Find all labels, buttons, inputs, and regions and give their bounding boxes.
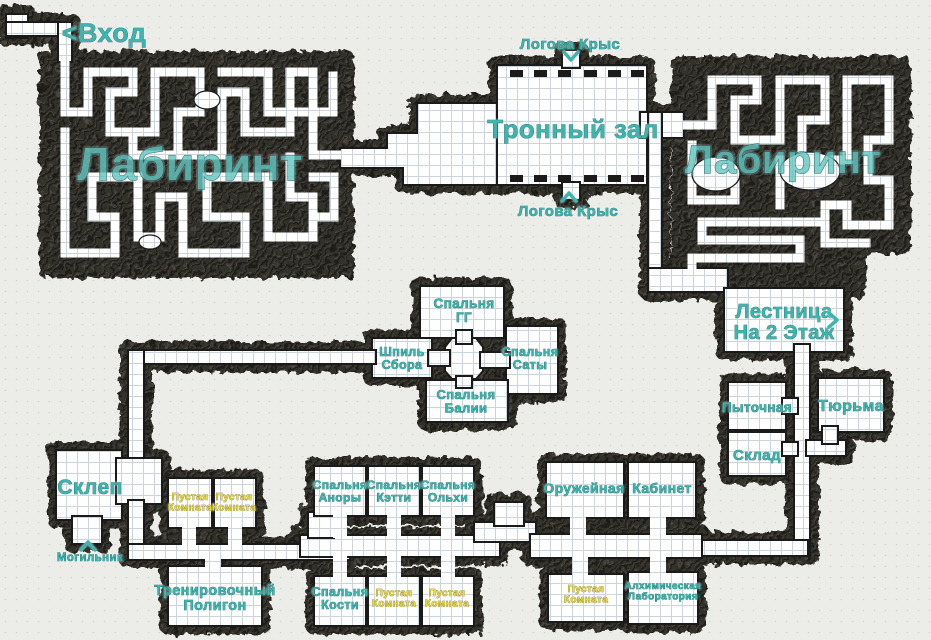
torture-room-label: Пыточная [722, 400, 792, 415]
throne-column [608, 175, 621, 182]
room-floor [700, 540, 808, 556]
labyrinth-right-label: Лабиринт [685, 138, 882, 182]
doorway [650, 512, 666, 538]
burial-ground-label: Могильник [57, 552, 123, 564]
throne-column [510, 70, 523, 77]
doorway [333, 553, 347, 580]
bedroom-balia-label: СпальняБалии [437, 387, 496, 416]
labyrinth-left-label: Лабиринт [77, 138, 303, 190]
doorway [572, 552, 588, 578]
throne-column [631, 175, 644, 182]
room-floor [128, 350, 376, 364]
dungeon-map: <ВходЛабиринтЛабиринтТронный залЛогова К… [0, 0, 931, 640]
maze-cave [194, 91, 220, 109]
empty-room-3-label: ПустаяКомната [372, 588, 416, 609]
throne-column [608, 70, 621, 77]
empty-room-4-label: ПустаяКомната [425, 588, 469, 609]
bedroom-anora-label: СпальняАноры [313, 478, 368, 504]
room-floor [72, 516, 102, 544]
doorway [441, 553, 455, 580]
throne-column [534, 70, 547, 77]
room-floor [782, 442, 798, 456]
throne-hall-label: Тронный зал [487, 114, 658, 144]
armory-label: Оружейная [543, 480, 624, 496]
throne-column [558, 175, 571, 182]
throne-column [534, 175, 547, 182]
doorway [441, 510, 455, 538]
rat-lair-top-label: Логова Крыс [520, 36, 620, 53]
doorway [205, 554, 221, 570]
room-floor [822, 426, 838, 444]
doorway [650, 552, 666, 576]
bedroom-olha-label: СпальняОльхи [421, 478, 476, 504]
room-floor [494, 502, 524, 526]
room-floor [428, 350, 450, 366]
gathering-spire-label: ШпильСбора [379, 345, 424, 372]
throne-column [558, 70, 571, 77]
throne-column [631, 70, 644, 77]
room-floor [116, 458, 162, 504]
storage-label: Склад [733, 447, 781, 464]
doorway [387, 510, 401, 538]
dungeon-map-canvas: <ВходЛабиринтЛабиринтТронный залЛогова К… [0, 0, 931, 640]
doorway [333, 510, 347, 538]
rat-lair-bottom-label: Логова Крыс [518, 203, 618, 220]
throne-column [584, 175, 597, 182]
doorway [387, 553, 401, 580]
room-floor [530, 534, 702, 558]
prison-label: Тюрьма [818, 398, 884, 415]
doorway [182, 524, 196, 548]
throne-column [510, 175, 523, 182]
crypt-label: Склеп [57, 476, 122, 499]
doorway [228, 524, 242, 548]
stairs-label: ЛестницаНа 2 Этаж [734, 301, 835, 344]
room-floor [456, 330, 472, 344]
empty-room-5-label: ПустаяКомната [564, 584, 608, 605]
alchemy-lab-label: АлхимическаяЛаборатория [625, 581, 702, 602]
empty-room-2-label: ПустаяКомната [212, 492, 256, 513]
empty-room-1-label: ПустаяКомната [168, 492, 212, 513]
throne-column [584, 70, 597, 77]
maze-cave [139, 235, 161, 249]
entrance-label: <Вход [62, 18, 147, 48]
doorway [570, 512, 586, 538]
cabinet-label: Кабинет [632, 480, 691, 496]
